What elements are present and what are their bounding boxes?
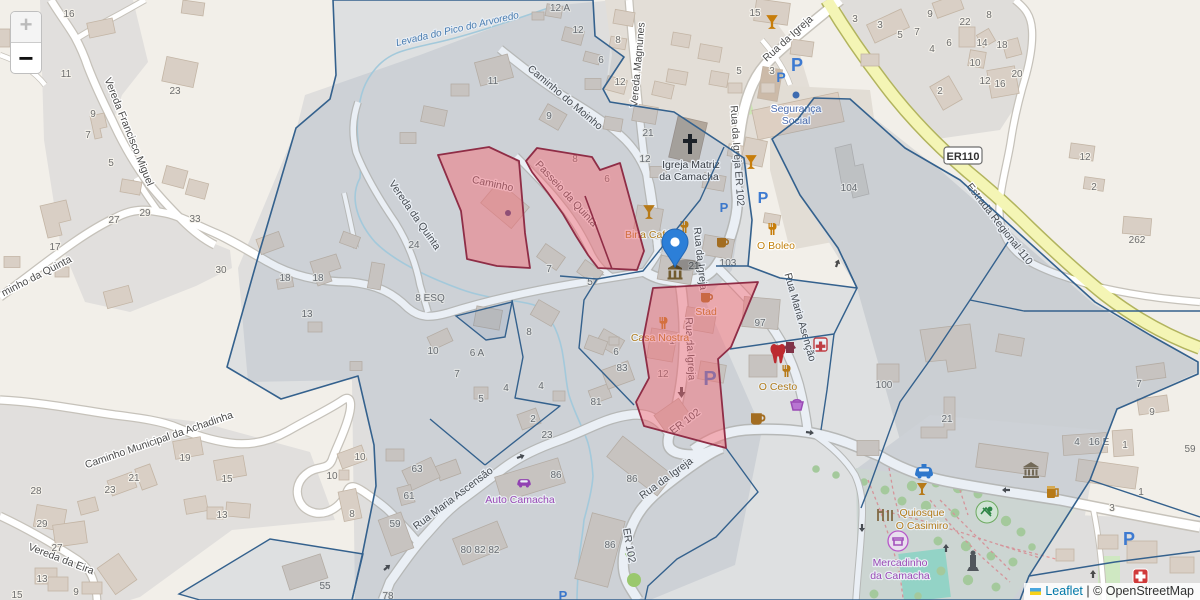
svg-text:16: 16	[63, 9, 75, 20]
svg-text:9: 9	[90, 109, 96, 120]
svg-text:5: 5	[897, 30, 903, 41]
svg-text:3: 3	[1109, 503, 1115, 514]
svg-text:29: 29	[36, 519, 48, 530]
svg-text:P: P	[776, 69, 785, 85]
svg-text:12: 12	[1079, 152, 1091, 163]
svg-text:28: 28	[30, 486, 42, 497]
svg-text:22: 22	[959, 17, 971, 28]
svg-text:9: 9	[73, 587, 79, 598]
svg-text:1: 1	[1122, 440, 1128, 451]
svg-text:262: 262	[1129, 235, 1146, 246]
svg-text:9: 9	[1149, 407, 1155, 418]
svg-text:P: P	[1123, 529, 1135, 549]
svg-text:10: 10	[326, 471, 338, 482]
svg-text:17: 17	[49, 242, 61, 253]
svg-text:29: 29	[139, 208, 151, 219]
svg-text:P: P	[791, 55, 803, 75]
svg-text:27: 27	[51, 543, 63, 554]
svg-text:8: 8	[349, 509, 355, 520]
svg-text:10: 10	[969, 58, 981, 69]
svg-text:23: 23	[169, 86, 181, 97]
svg-text:3: 3	[877, 20, 883, 31]
svg-text:8: 8	[615, 35, 621, 46]
svg-text:33: 33	[189, 214, 201, 225]
svg-text:19: 19	[179, 453, 191, 464]
svg-text:3: 3	[852, 14, 858, 25]
svg-text:23: 23	[104, 485, 116, 496]
svg-text:2: 2	[937, 86, 943, 97]
svg-text:3: 3	[769, 66, 775, 77]
svg-text:59: 59	[1184, 444, 1196, 455]
svg-text:13: 13	[36, 574, 48, 585]
svg-text:7: 7	[914, 27, 920, 38]
svg-text:7: 7	[85, 130, 91, 141]
svg-text:18: 18	[996, 40, 1008, 51]
svg-text:ER110: ER110	[946, 151, 979, 163]
svg-text:12: 12	[979, 76, 991, 87]
svg-text:13: 13	[216, 510, 228, 521]
svg-text:14: 14	[976, 38, 988, 49]
svg-text:27: 27	[108, 215, 120, 226]
svg-text:9: 9	[927, 9, 933, 20]
svg-text:12: 12	[614, 77, 626, 88]
svg-text:8: 8	[986, 10, 992, 21]
svg-text:4: 4	[929, 44, 935, 55]
svg-text:6: 6	[946, 38, 952, 49]
svg-text:15: 15	[11, 590, 23, 600]
svg-text:21: 21	[128, 473, 140, 484]
svg-text:2: 2	[1091, 182, 1097, 193]
svg-text:20: 20	[1011, 69, 1023, 80]
svg-text:10: 10	[354, 452, 366, 463]
svg-text:P: P	[758, 190, 769, 207]
svg-text:15: 15	[221, 474, 233, 485]
svg-text:11: 11	[61, 69, 72, 80]
svg-text:16: 16	[994, 79, 1006, 90]
svg-text:15: 15	[749, 8, 761, 19]
svg-text:5: 5	[108, 158, 114, 169]
svg-text:5: 5	[736, 66, 742, 77]
svg-text:30: 30	[215, 265, 227, 276]
svg-text:O Boleo: O Boleo	[757, 240, 795, 252]
